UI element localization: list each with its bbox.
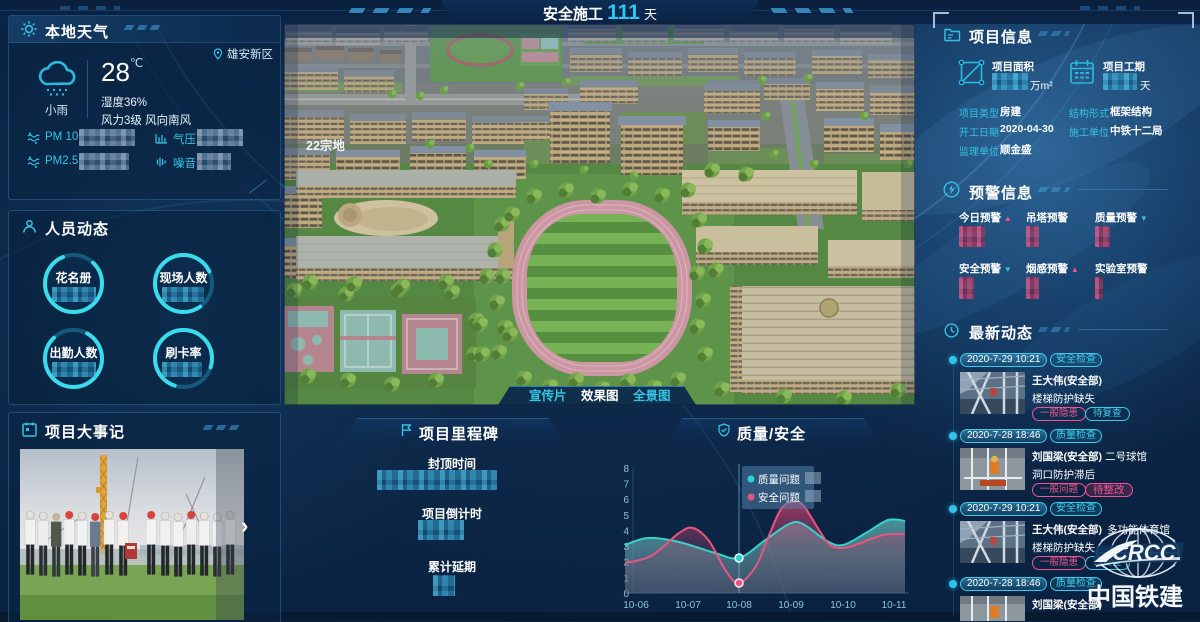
svg-text:4: 4 [623,527,629,538]
svg-text:全景图: 全景图 [632,388,671,403]
svg-text:22宗地: 22宗地 [306,138,345,153]
svg-text:10-07: 10-07 [675,600,701,611]
svg-text:CRCC: CRCC [1112,540,1177,565]
svg-text:10-09: 10-09 [778,600,804,611]
svg-text:10-08: 10-08 [726,600,752,611]
svg-text:10-10: 10-10 [830,600,856,611]
svg-text:质量问题: 质量问题 [758,473,800,486]
svg-text:10-11: 10-11 [882,600,907,611]
svg-text:8: 8 [623,464,629,475]
svg-text:安全问题: 安全问题 [758,491,800,504]
svg-text:效果图: 效果图 [581,388,619,403]
svg-text:7: 7 [623,480,629,491]
svg-text:宣传片: 宣传片 [529,388,567,403]
svg-text:6: 6 [623,495,629,506]
svg-text:5: 5 [623,511,629,522]
svg-text:中国铁建: 中国铁建 [1087,584,1183,611]
svg-text:10-06: 10-06 [623,600,649,611]
